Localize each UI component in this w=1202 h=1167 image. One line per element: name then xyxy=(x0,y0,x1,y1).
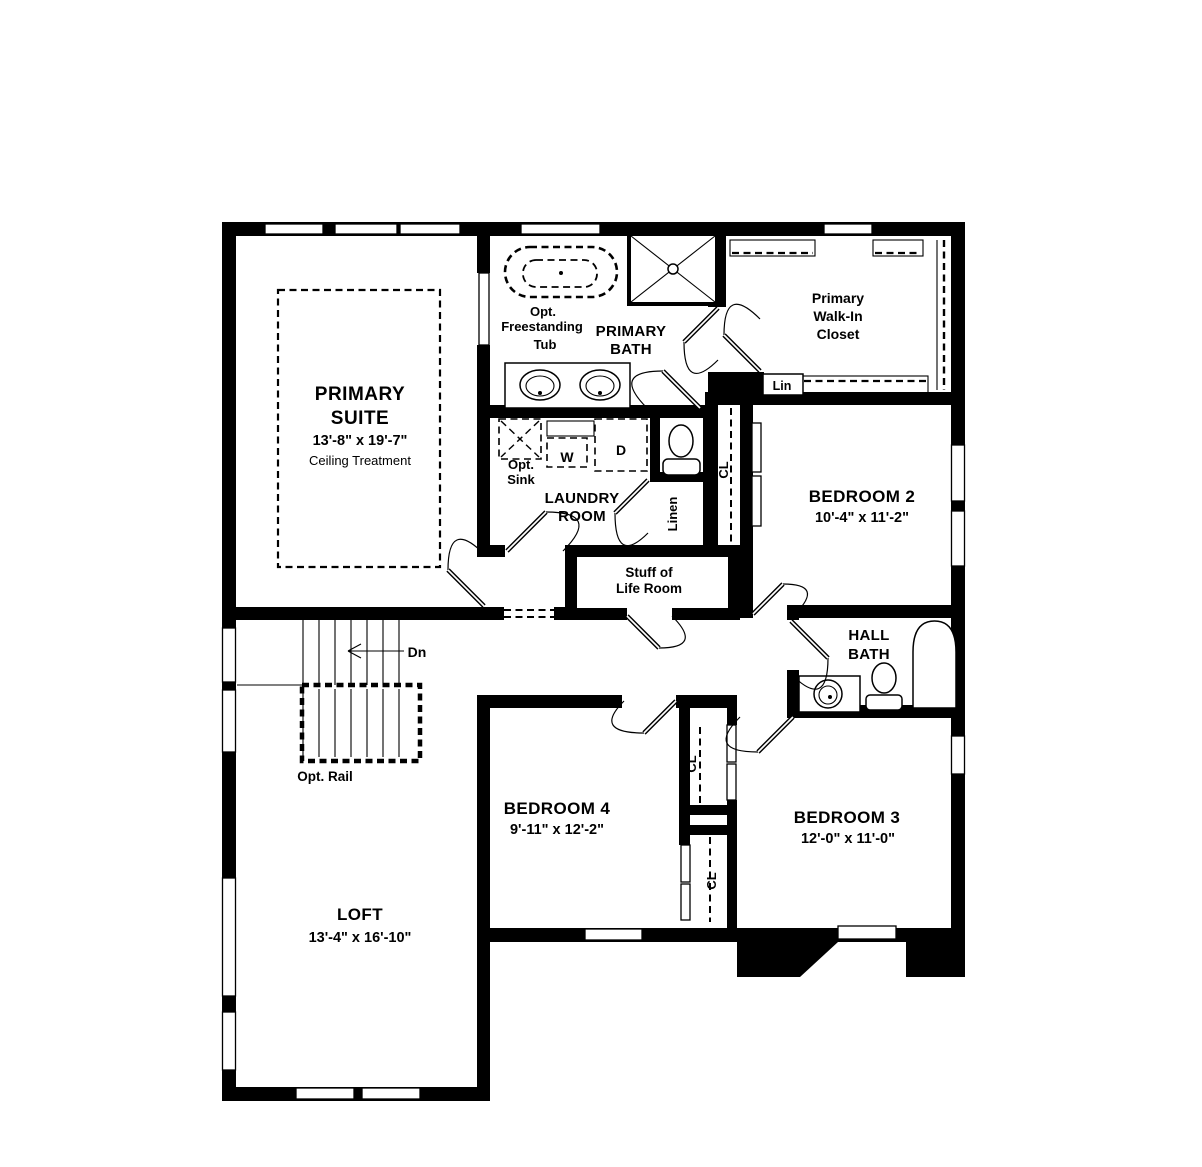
bedroom2-dims: 10'-4" x 11'-2" xyxy=(815,510,909,526)
closet-label: CL xyxy=(684,755,699,772)
closet-door-panel xyxy=(681,884,690,920)
closet-door-panel xyxy=(727,764,736,800)
opt-tub-label-3: Tub xyxy=(534,337,557,352)
window xyxy=(362,1088,420,1099)
lin-label: Lin xyxy=(773,379,792,393)
bedroom4-dims: 9'-11" x 12'-2" xyxy=(510,822,604,838)
window xyxy=(223,628,236,682)
window xyxy=(223,878,236,996)
window xyxy=(400,224,460,234)
staircase: Dn Opt. Rail xyxy=(237,620,426,784)
closet-door-panel xyxy=(681,845,690,882)
floor-plan-page: PRIMARY SUITE 13'-8" x 19'-7" Ceiling Tr… xyxy=(0,0,1202,1167)
closet-label: CL xyxy=(704,872,719,889)
laundry-label-1: LAUNDRY xyxy=(545,490,620,507)
toilet xyxy=(872,663,896,693)
walk-in-closet-label-1: Primary xyxy=(812,290,864,306)
primary-bath-label-2: BATH xyxy=(610,341,652,358)
linen-label: Linen xyxy=(665,497,680,532)
down-label: Dn xyxy=(408,644,427,660)
window xyxy=(952,511,965,566)
primary-suite-note: Ceiling Treatment xyxy=(309,453,411,468)
stuff-of-life-label-1: Stuff of xyxy=(625,565,673,580)
bathtub xyxy=(913,621,956,708)
hall-bath-label-1: HALL xyxy=(848,627,889,644)
laundry-label-2: ROOM xyxy=(558,508,606,525)
opt-rail-outline xyxy=(302,685,420,761)
water-closet xyxy=(663,425,700,475)
hall-bath-label-2: BATH xyxy=(848,646,890,663)
floor-plan-drawing: PRIMARY SUITE 13'-8" x 19'-7" Ceiling Tr… xyxy=(0,0,1202,1167)
window xyxy=(585,929,642,940)
opt-tub-label-1: Opt. xyxy=(530,304,556,319)
closet-door-panel xyxy=(752,476,761,526)
window xyxy=(223,690,236,752)
window xyxy=(521,224,600,234)
down-arrow xyxy=(348,644,404,658)
primary-suite: PRIMARY SUITE 13'-8" x 19'-7" Ceiling Tr… xyxy=(278,290,440,567)
window xyxy=(296,1088,354,1099)
dryer-label: D xyxy=(616,442,626,458)
opt-sink-label-1: Opt. xyxy=(508,457,534,472)
washer-label: W xyxy=(560,449,574,465)
double-vanity xyxy=(505,363,630,408)
walk-in-closet-label-2: Walk-In xyxy=(813,308,862,324)
walk-in-closet-label-3: Closet xyxy=(817,326,860,342)
shower xyxy=(629,234,717,304)
primary-bath-label-1: PRIMARY xyxy=(596,323,667,340)
primary-suite-label-2: SUITE xyxy=(331,408,389,429)
hall-bath: HALL BATH xyxy=(799,621,956,712)
closet-shelf xyxy=(802,376,928,393)
closet-door-panel xyxy=(752,423,761,472)
primary-suite-dims: 13'-8" x 19'-7" xyxy=(313,433,408,449)
stuff-of-life-label-2: Life Room xyxy=(616,581,682,596)
bedroom2-label: BEDROOM 2 xyxy=(809,487,916,506)
primary-suite-label-1: PRIMARY xyxy=(315,384,405,405)
loft-dims: 13'-4" x 16'-10" xyxy=(309,930,412,946)
closet-label: CL xyxy=(716,461,731,478)
window xyxy=(952,445,965,501)
window xyxy=(265,224,323,234)
window xyxy=(952,736,965,774)
opt-tub-label-2: Freestanding xyxy=(501,319,583,334)
window xyxy=(838,926,896,939)
shower-drain xyxy=(668,264,678,274)
window xyxy=(223,1012,236,1070)
primary-walk-in-closet: Primary Walk-In Closet Lin xyxy=(730,240,944,395)
opt-sink-label-2: Sink xyxy=(507,472,535,487)
bedroom3-label: BEDROOM 3 xyxy=(794,808,901,827)
bedroom4-label: BEDROOM 4 xyxy=(504,799,611,818)
bedroom3-dims: 12'-0" x 11'-0" xyxy=(801,831,895,847)
toilet xyxy=(669,425,693,457)
cased-opening-suite-bath xyxy=(479,273,489,345)
loft-label: LOFT xyxy=(337,905,383,924)
opt-rail-label: Opt. Rail xyxy=(297,769,353,784)
window xyxy=(335,224,397,234)
window xyxy=(824,224,872,234)
